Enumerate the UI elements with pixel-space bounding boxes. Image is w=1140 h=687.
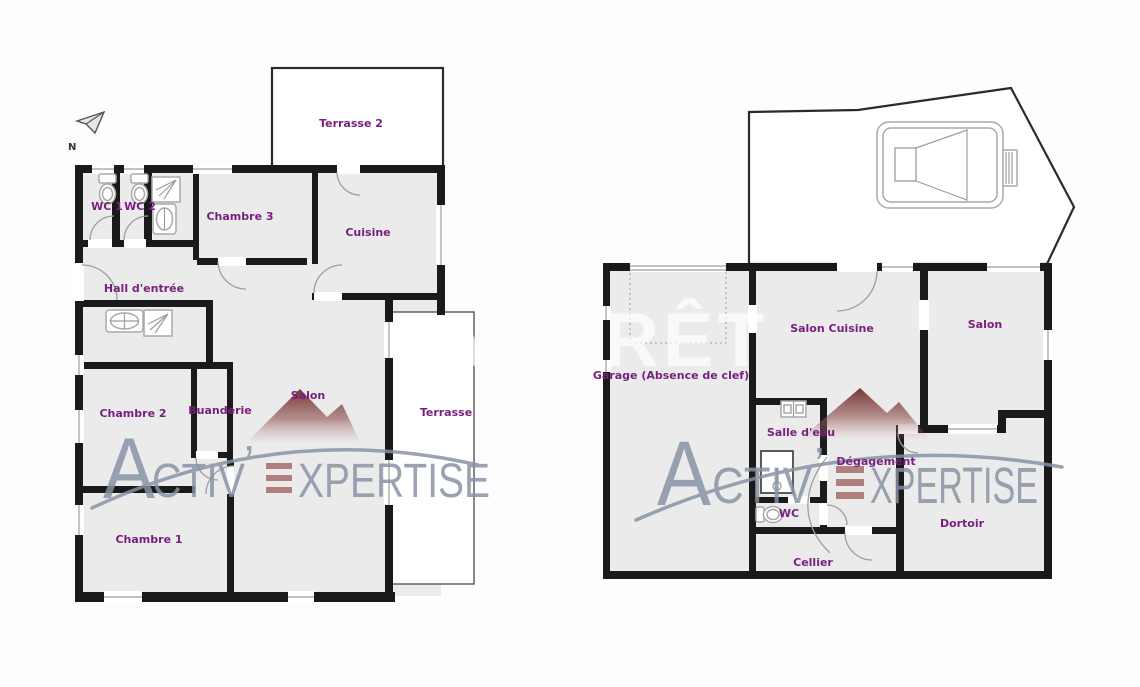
sink-icon (106, 310, 143, 332)
sink-icon (153, 204, 176, 234)
brand-ctiv: CTIV (712, 457, 812, 514)
room-label-buanderie: Buanderie (188, 404, 251, 417)
brand-letter-a: A (103, 421, 156, 517)
pool-icon (877, 122, 1017, 208)
room-label-garage: Garage (Absence de clef) (593, 369, 749, 382)
room-label-wc: WC (779, 507, 799, 520)
room-label-chambre-3: Chambre 3 (206, 210, 273, 223)
brand-xpertise: XPERTISE (298, 455, 490, 508)
room-label-cuisine: Cuisine (345, 226, 390, 239)
room-label-salon: Salon (291, 389, 326, 402)
stylized-e-icon (836, 466, 864, 499)
sink-icon (781, 401, 806, 417)
room-label-salon-cuisine: Salon Cuisine (790, 322, 874, 335)
room-label-terrasse: Terrasse (420, 406, 472, 419)
room-label-degagement: Dégagement (836, 455, 915, 468)
brand-apostrophe: ’ (244, 436, 254, 488)
north-label: N (68, 142, 76, 153)
brand-ctiv: CTIV (152, 455, 245, 508)
shower-icon (152, 177, 180, 202)
room-label-chambre-1: Chambre 1 (115, 533, 182, 546)
compass: N (68, 112, 104, 153)
room-label-wc1: WC 1 (91, 200, 123, 213)
room-label-dortoir: Dortoir (940, 517, 985, 530)
brand-letter-a: A (657, 423, 712, 525)
stylized-e-icon (266, 463, 292, 493)
shower-icon (144, 310, 172, 336)
room-label-cellier: Cellier (793, 556, 833, 569)
room-label-salle-eau: Salle d'eau (767, 426, 835, 439)
floor-plan-drawing: LAFORÊT (0, 0, 1140, 687)
room-label-chambre-2: Chambre 2 (99, 407, 166, 420)
room-label-hall: Hall d'entrée (104, 282, 184, 295)
room-label-salon: Salon (968, 318, 1003, 331)
room-label-wc2: WC 2 (124, 200, 156, 213)
brand-apostrophe: ’ (814, 439, 825, 492)
floor-plan-page: LAFORÊT (0, 0, 1140, 687)
room-label-terrasse-2: Terrasse 2 (319, 117, 383, 130)
